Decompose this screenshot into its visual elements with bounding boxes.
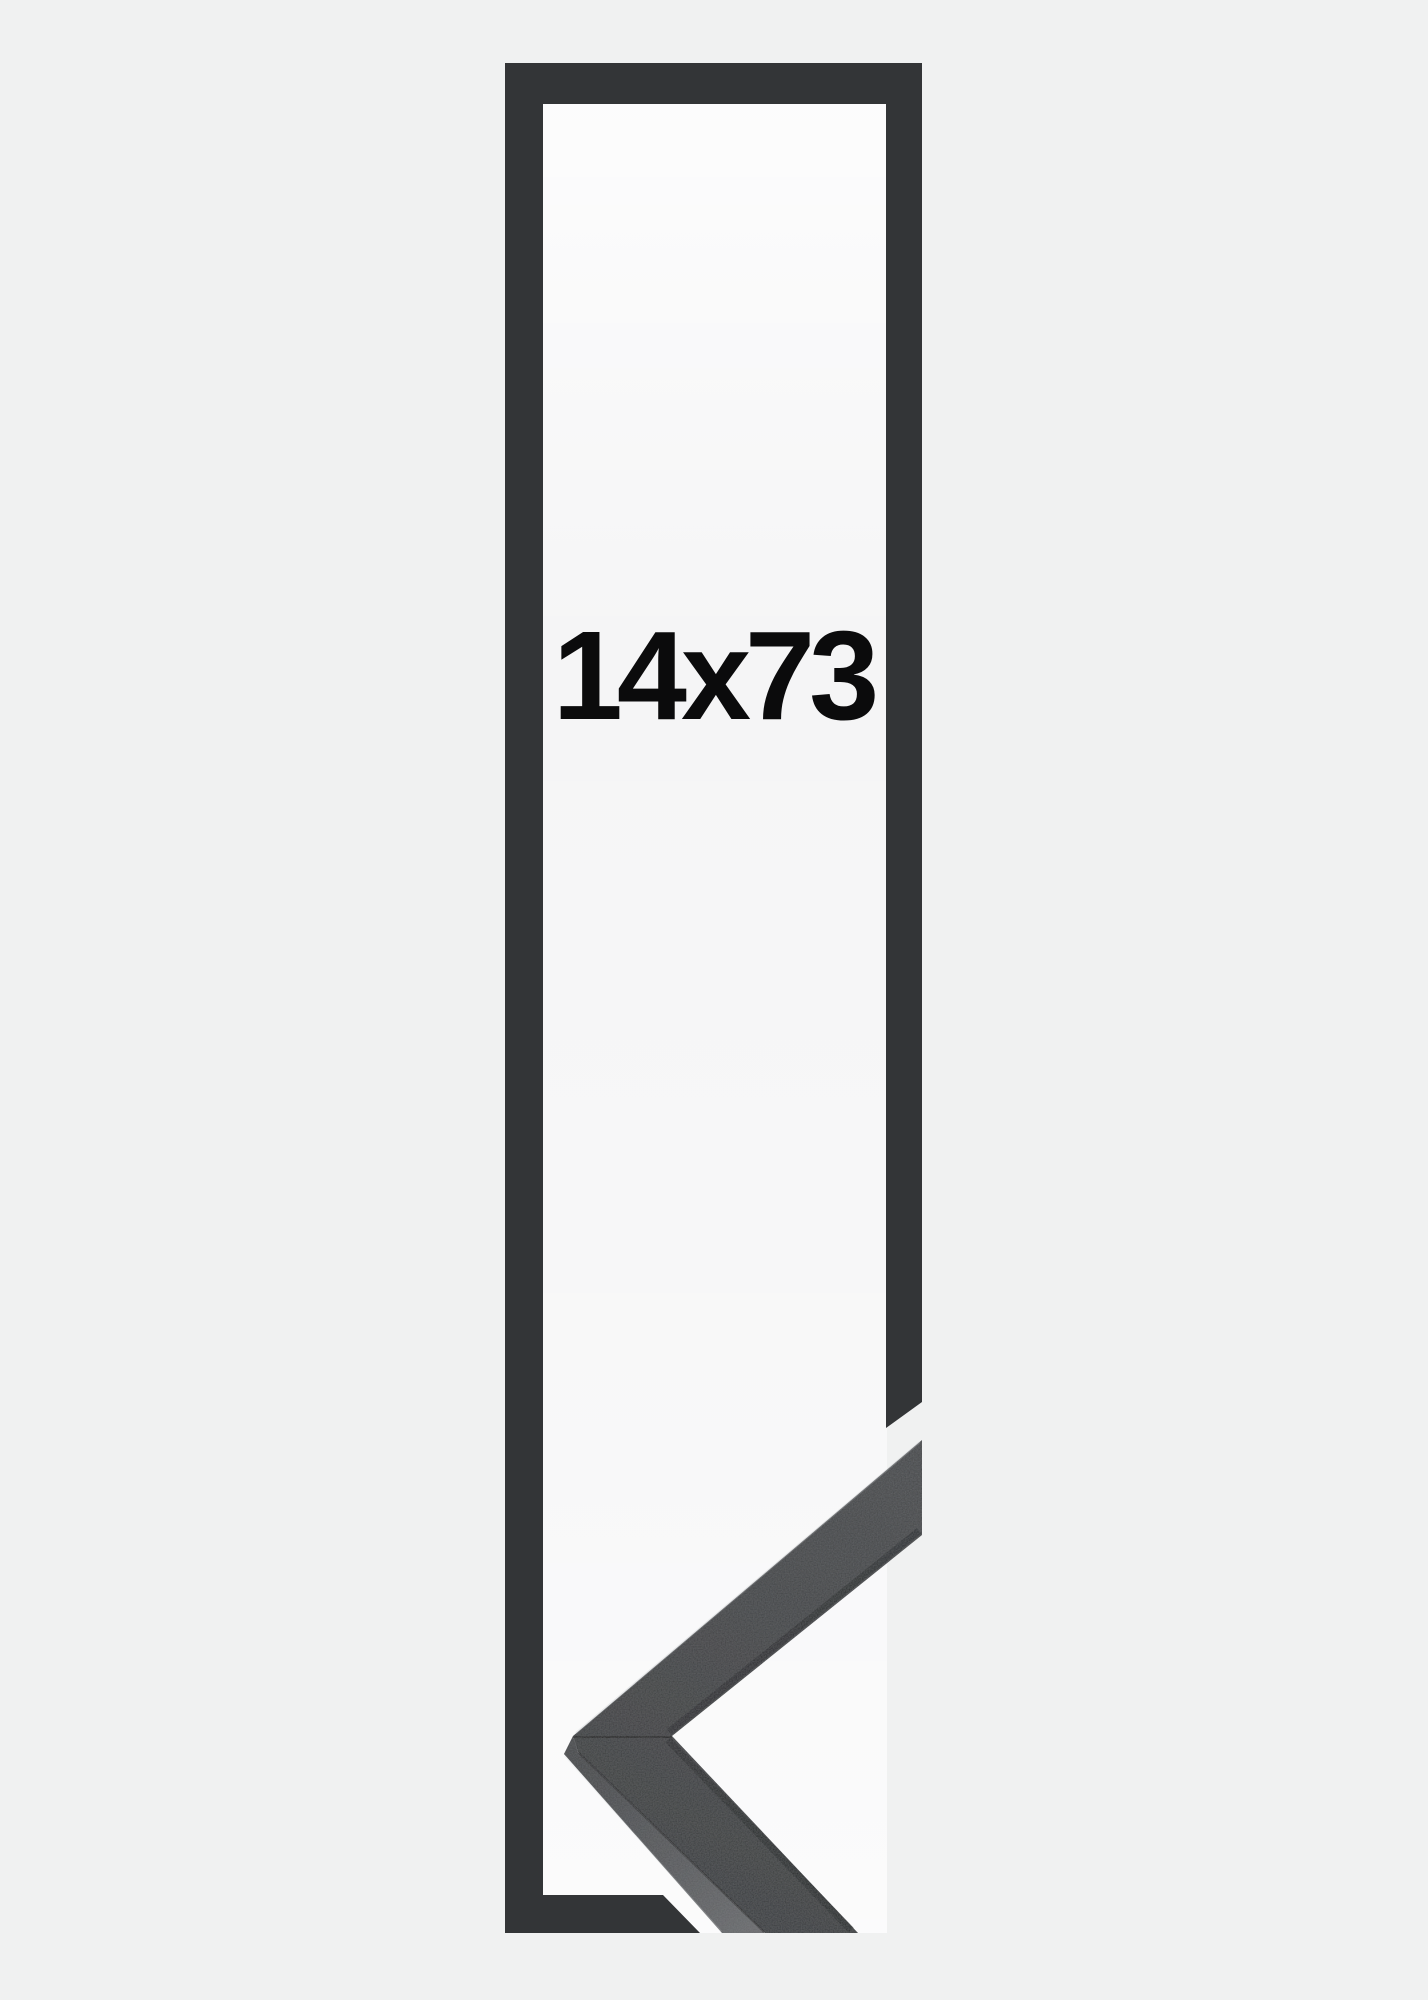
size-label: 14x73 [553, 605, 875, 746]
frame-illustration: 14x73 [0, 0, 1428, 2000]
frame-product-image: 14x73 [0, 0, 1428, 2000]
